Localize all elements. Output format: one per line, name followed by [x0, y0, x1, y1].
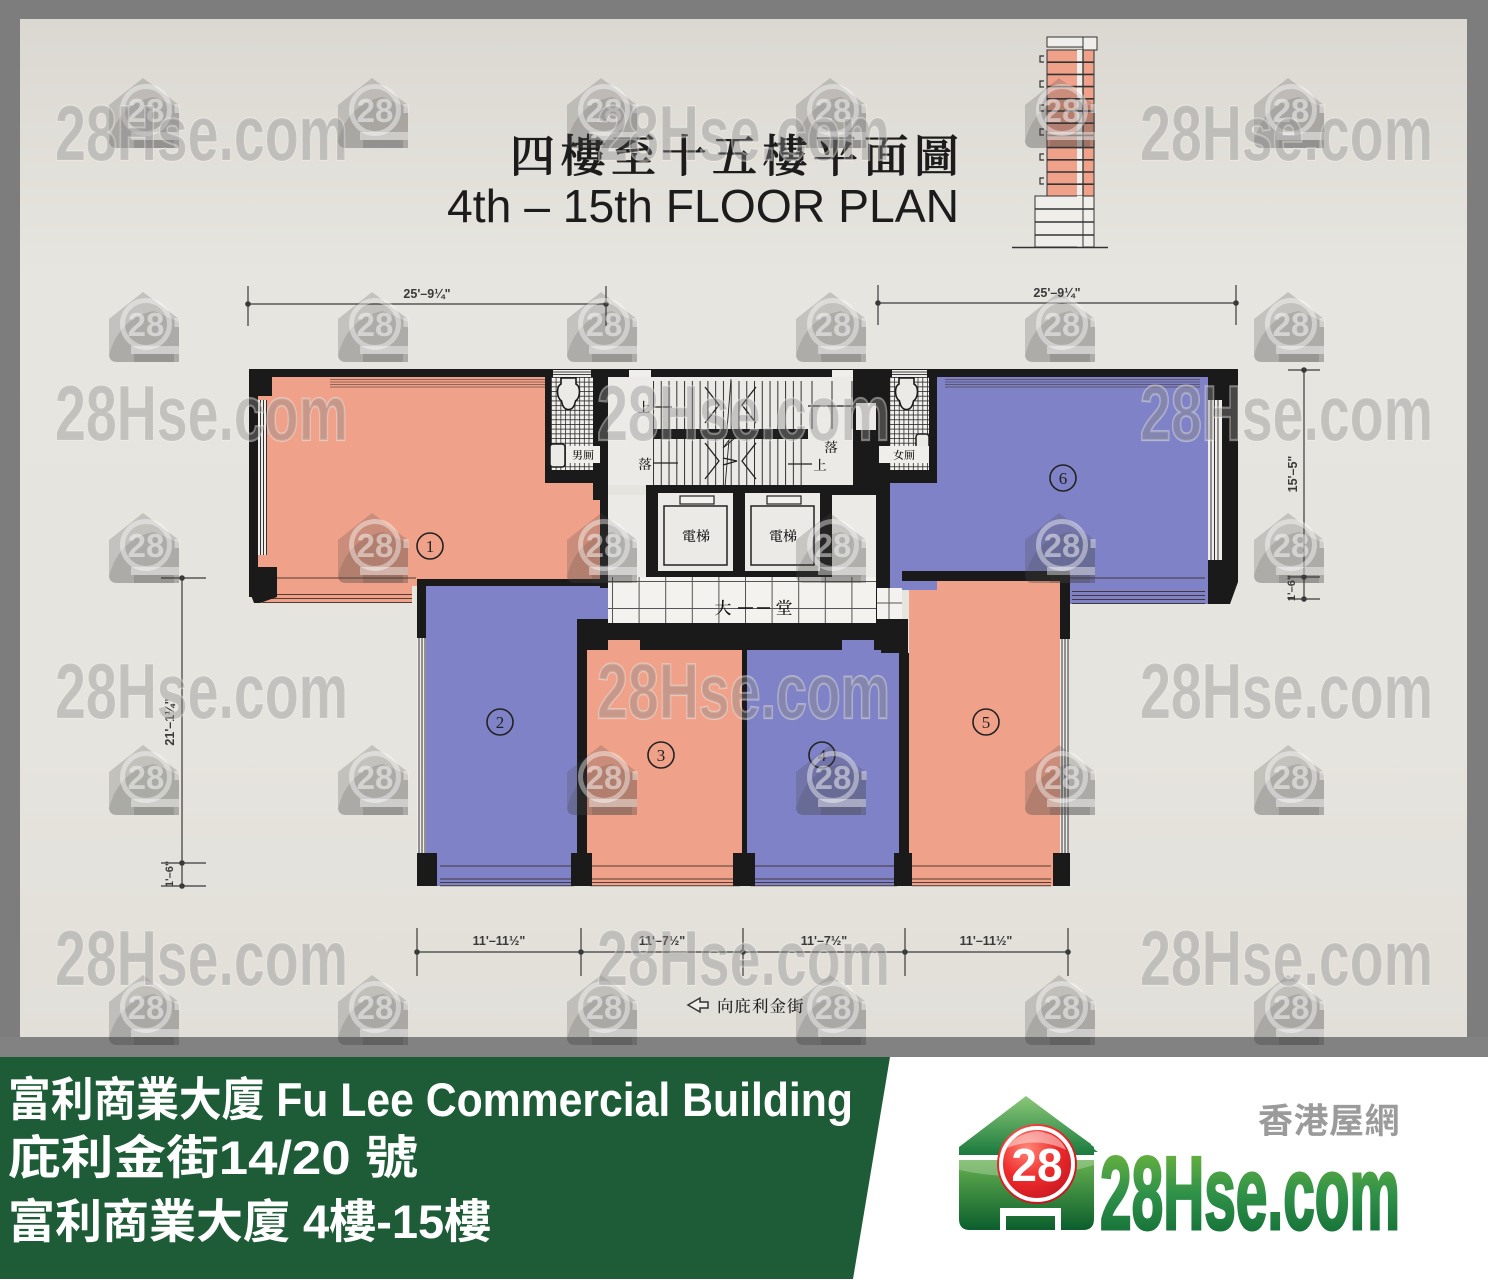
svg-text:5: 5 — [982, 708, 991, 733]
svg-text:大: 大 — [715, 594, 732, 619]
svg-text:11'–11½": 11'–11½" — [960, 934, 1013, 948]
svg-text:28: 28 — [1011, 1139, 1062, 1191]
svg-text:1: 1 — [426, 532, 435, 557]
svg-text:上: 上 — [813, 454, 827, 474]
svg-text:3: 3 — [657, 741, 666, 766]
svg-text:庇利金街14/20 號: 庇利金街14/20 號 — [8, 1131, 418, 1184]
svg-text:15'–5": 15'–5" — [1286, 456, 1300, 493]
svg-text:香港屋網: 香港屋網 — [1258, 1093, 1400, 1144]
svg-text:電梯: 電梯 — [682, 526, 710, 546]
svg-text:2: 2 — [496, 708, 505, 733]
svg-text:女厠: 女厠 — [893, 447, 915, 463]
svg-text:6: 6 — [1059, 464, 1068, 489]
svg-text:富利商業大廈 Fu Lee Commercial Build: 富利商業大廈 Fu Lee Commercial Building — [8, 1073, 853, 1126]
svg-text:1'–6": 1'–6" — [164, 861, 176, 887]
svg-text:25'–9¼": 25'–9¼" — [403, 287, 450, 301]
svg-text:28Hse.com: 28Hse.com — [1100, 1136, 1400, 1252]
svg-text:電梯: 電梯 — [769, 526, 797, 546]
svg-text:富利商業大廈 4樓-15樓: 富利商業大廈 4樓-15樓 — [8, 1195, 491, 1248]
svg-text:11'–11½": 11'–11½" — [473, 934, 526, 948]
svg-text:男厠: 男厠 — [572, 447, 594, 463]
svg-text:堂: 堂 — [776, 594, 793, 619]
svg-text:4th – 15th FLOOR PLAN: 4th – 15th FLOOR PLAN — [447, 180, 959, 232]
